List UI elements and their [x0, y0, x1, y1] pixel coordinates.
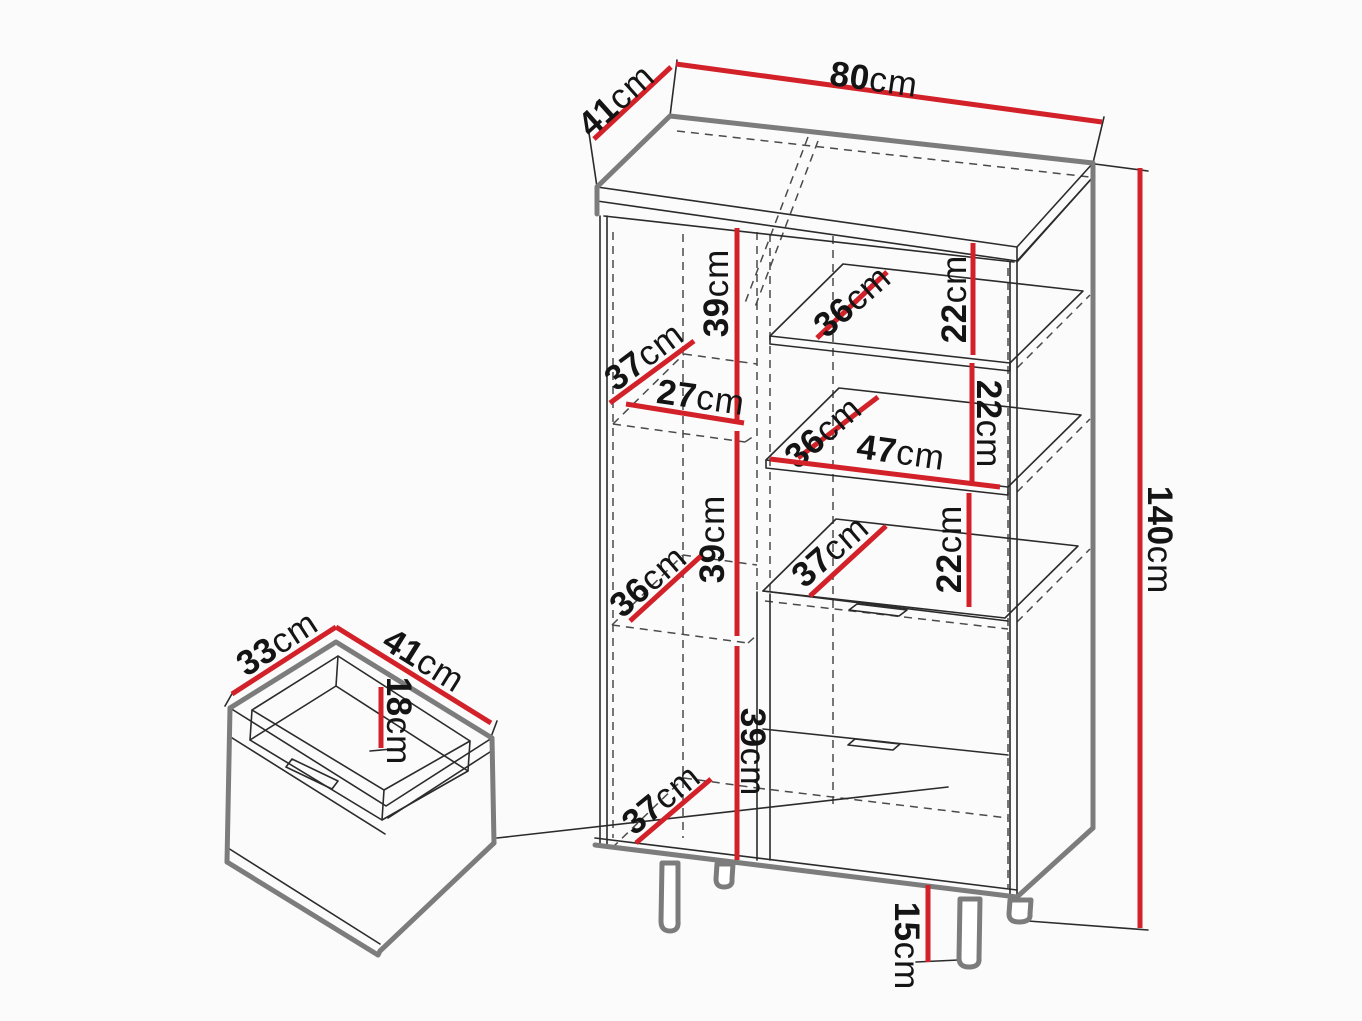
dimension-label-right-gap2-height: 22cm — [969, 380, 1008, 469]
cabinet-handle-slots — [848, 604, 907, 750]
dimension-label-top-depth: 41cm — [570, 56, 662, 144]
dimension-label-left-section1-height: 39cm — [697, 249, 736, 338]
cabinet-legs — [661, 863, 1031, 967]
dimension-label-drawer-inner-height: 18cm — [379, 677, 418, 766]
dimension-label-left-bottom-depth: 37cm — [615, 756, 708, 842]
furniture-dimension-diagram: 41cm80cm140cm39cm37cm27cm36cm22cm36cm47c… — [0, 0, 1362, 1021]
drawer-detail — [225, 642, 948, 955]
dimension-label-left-shelf2-depth: 36cm — [602, 538, 694, 626]
dimension-label-left-section2-height: 39cm — [693, 495, 732, 584]
dimension-label-drawer-depth: 33cm — [230, 603, 326, 684]
dimension-label-right-gap3-height: 22cm — [930, 505, 969, 594]
dimension-label-right-shelf1-depth: 36cm — [806, 258, 898, 346]
dimension-label-overall-height: 140cm — [1140, 486, 1179, 595]
dimension-label-top-width: 80cm — [827, 54, 920, 105]
dimension-annotations: 41cm80cm140cm39cm37cm27cm36cm22cm36cm47c… — [230, 54, 1179, 990]
dimension-label-right-gap1-height: 22cm — [935, 255, 974, 344]
dimension-label-left-section3-height: 39cm — [733, 708, 772, 797]
drawer-leader-line — [497, 787, 948, 838]
drawer-handle-slot — [286, 759, 338, 789]
dimension-label-left-inner-width: 27cm — [654, 372, 747, 423]
diagram-canvas: 41cm80cm140cm39cm37cm27cm36cm22cm36cm47c… — [0, 0, 1362, 1021]
back-left-leg — [716, 864, 733, 887]
dimension-label-right-shelf3-depth: 37cm — [784, 508, 876, 596]
drawer2-handle-slot — [848, 739, 900, 750]
back-right-leg — [1009, 900, 1031, 922]
front-right-leg — [959, 899, 980, 967]
front-left-leg — [661, 863, 678, 931]
dimension-label-leg-height: 15cm — [887, 902, 926, 991]
cabinet-body-outline — [589, 60, 1148, 962]
